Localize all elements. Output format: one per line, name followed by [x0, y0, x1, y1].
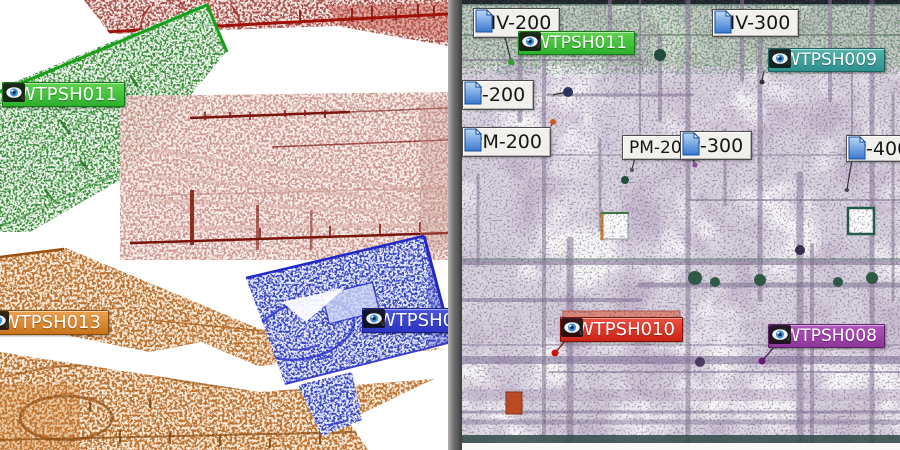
right-viewport[interactable]: HV-200 HV-300 P-200 PM-200 PM-200	[462, 0, 900, 450]
scan-label-text: *WTPSH011	[9, 83, 117, 106]
scan-cloud-maroon-middle	[120, 92, 448, 260]
scan-label-wtpsh010[interactable]: *WTPSH010	[560, 317, 683, 342]
scan-label-wtpsh011-right[interactable]: *WTPSH011	[518, 31, 635, 55]
scan-label-wtpsh012-left[interactable]: *WTPSH012	[362, 308, 448, 333]
scan-label-text: *WTPSH013	[0, 311, 101, 334]
tag-label-p400[interactable]: P-400	[846, 135, 900, 162]
scan-label-text: *WTPSH010	[567, 318, 675, 341]
scan-label-wtpsh008[interactable]: *WTPSH008	[768, 324, 885, 348]
scan-label-wtpsh013-left[interactable]: *WTPSH013	[0, 310, 109, 335]
tag-label-pm200-a[interactable]: PM-200	[462, 127, 551, 157]
tag-label-p200[interactable]: P-200	[462, 80, 534, 110]
scan-label-wtpsh009[interactable]: *WTPSH009	[768, 48, 885, 72]
scan-label-wtpsh011-left[interactable]: *WTPSH011	[2, 82, 125, 107]
app-window: *WTPSH011 *WTPSH013 *WTPSH012	[0, 0, 900, 450]
tag-label-hv300[interactable]: HV-300	[712, 9, 799, 37]
tag-label-p300[interactable]: P-300	[680, 131, 752, 160]
left-viewport[interactable]: *WTPSH011 *WTPSH013 *WTPSH012	[0, 0, 448, 450]
left-pointcloud-canvas	[0, 0, 448, 450]
viewport-splitter[interactable]	[448, 0, 462, 450]
